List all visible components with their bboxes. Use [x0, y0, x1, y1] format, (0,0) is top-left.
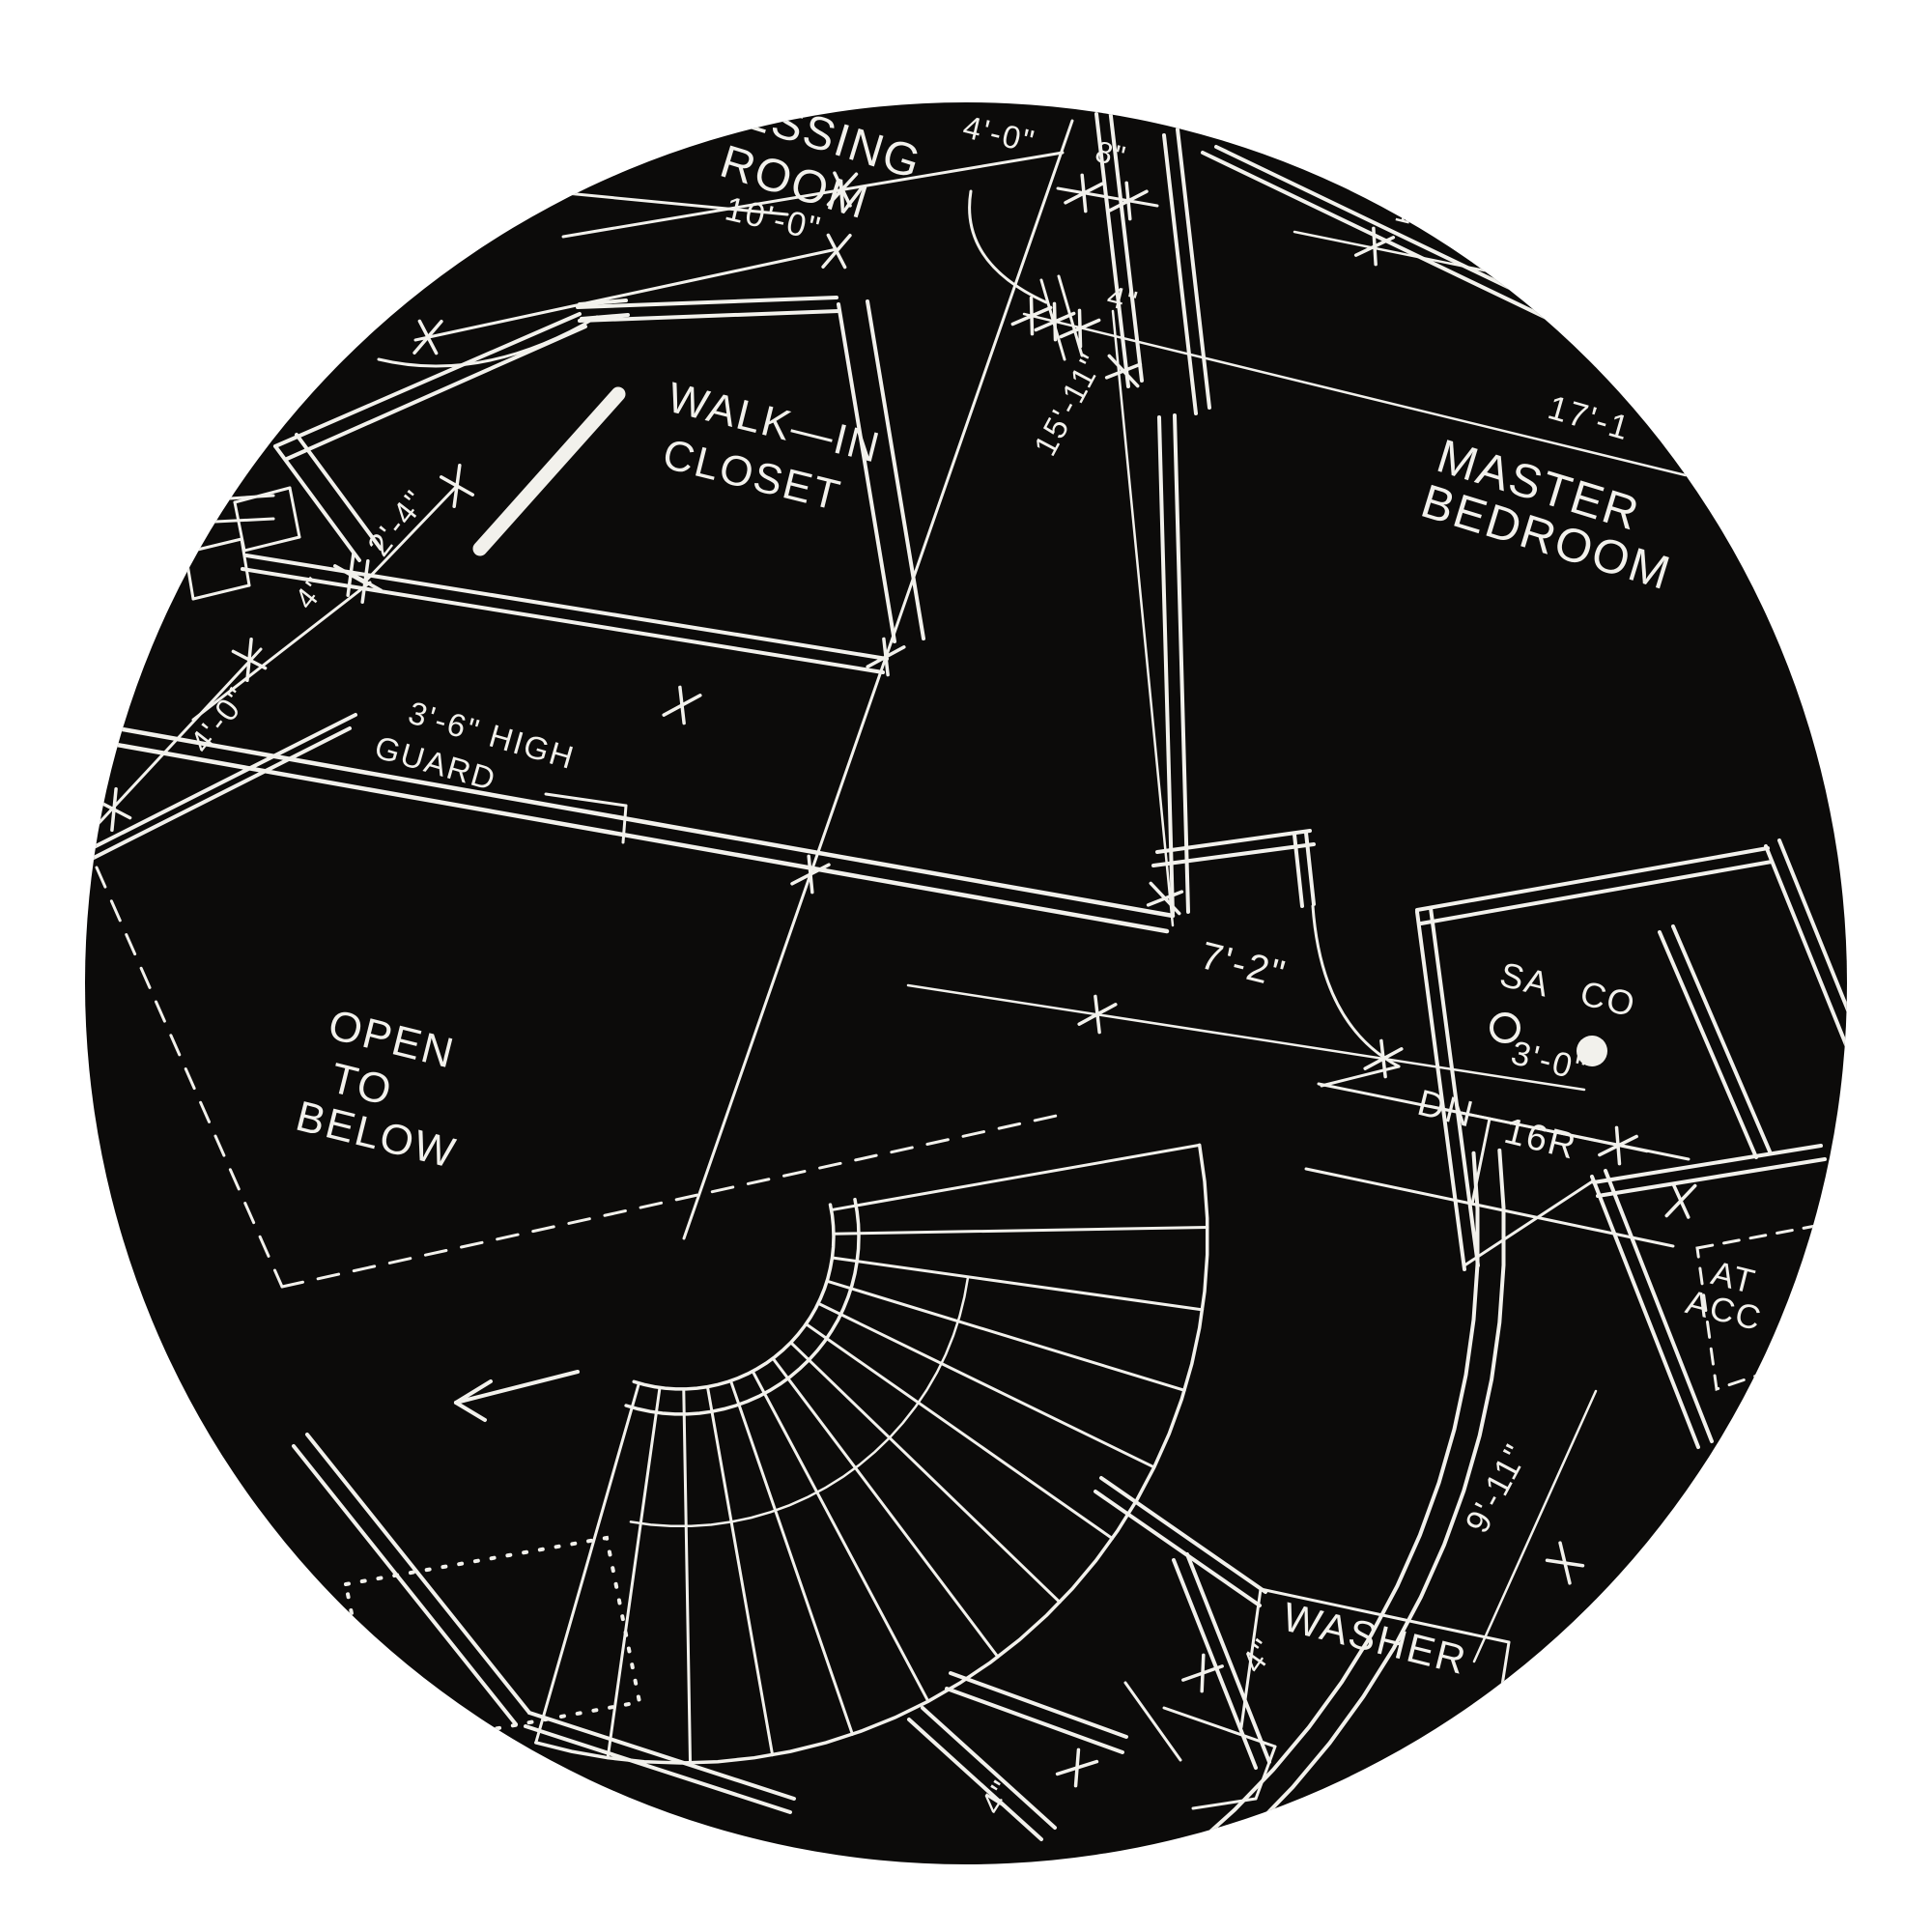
blueprint-image: RESSINGROOM4'-0"8"10'-0"4"115'-11"17'-1M… — [0, 0, 1932, 1932]
floor-plan-svg: RESSINGROOM4'-0"8"10'-0"4"115'-11"17'-1M… — [0, 0, 1932, 1932]
